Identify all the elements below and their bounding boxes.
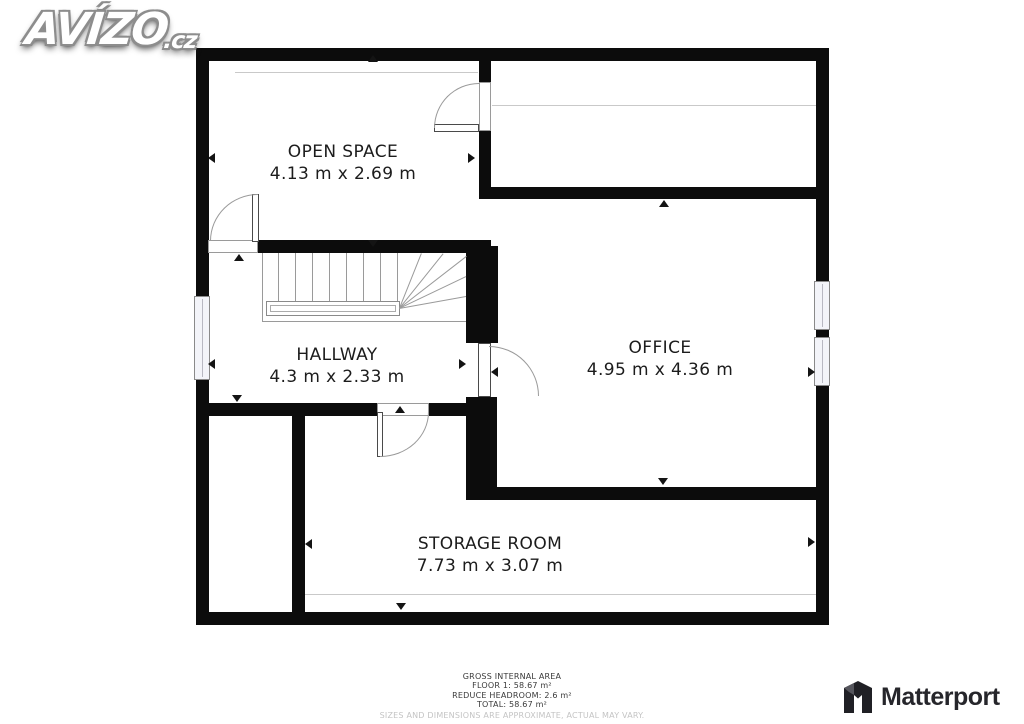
wall-hallway-bottom-left xyxy=(196,403,377,416)
arrow-hallway-up xyxy=(234,254,244,261)
arrow-office-down xyxy=(658,478,668,485)
avizo-suffix-text: .cz xyxy=(162,28,197,54)
matterport-wordmark: Matterport xyxy=(881,683,1000,712)
stair-handrail-inner xyxy=(270,305,396,312)
window-office-right-upper xyxy=(814,281,830,330)
stair-tread xyxy=(329,253,330,303)
room-name: HALLWAY xyxy=(197,344,477,366)
arrow-storage-down xyxy=(396,603,406,610)
room-label-open-space: OPEN SPACE 4.13 m x 2.69 m xyxy=(203,141,483,186)
stair-tread xyxy=(312,253,313,303)
matterport-icon xyxy=(843,681,873,714)
room-dims: 4.13 m x 2.69 m xyxy=(203,163,483,185)
arrow-storage-left xyxy=(305,539,312,549)
headroom-line-attic xyxy=(492,105,816,106)
wall-office-top xyxy=(479,187,829,199)
window-office-right-lower xyxy=(814,337,830,386)
arrow-hallway-down xyxy=(232,395,242,402)
wall-storage-left xyxy=(292,416,305,625)
door-threshold-openspace-east xyxy=(479,82,491,131)
arrow-storage-right xyxy=(808,537,815,547)
room-label-hallway: HALLWAY 4.3 m x 2.33 m xyxy=(197,344,477,389)
door-threshold-openspace-south xyxy=(208,240,258,253)
stair-tread xyxy=(363,253,364,303)
avizo-brand-text: AVÍZO xyxy=(23,4,169,55)
room-name: OFFICE xyxy=(520,337,800,359)
wall-openspace-divider-upper xyxy=(479,48,491,82)
room-name: STORAGE ROOM xyxy=(350,533,630,555)
wall-top xyxy=(196,48,829,61)
avizo-watermark-logo: AVÍZO.cz xyxy=(23,4,202,55)
stair-tread xyxy=(295,253,296,303)
door-swing-openspace-east xyxy=(434,83,479,128)
arrow-office-right xyxy=(808,367,815,377)
stair-tread xyxy=(346,253,347,303)
arrow-office-left xyxy=(491,367,498,377)
arrow-office-up xyxy=(659,200,669,207)
room-dims: 4.95 m x 4.36 m xyxy=(520,359,800,381)
door-swing-openspace-south xyxy=(210,194,258,241)
wall-office-left-lower xyxy=(466,397,497,500)
stair-tread xyxy=(397,253,398,303)
wall-openspace-bottom-left xyxy=(196,240,208,253)
arrow-storage-up xyxy=(395,406,405,413)
wall-bottom xyxy=(196,612,829,625)
wall-chimney-block xyxy=(466,246,498,343)
matterport-logo: Matterport xyxy=(843,681,1000,714)
area-summary-title: GROSS INTERNAL AREA xyxy=(0,672,1024,681)
arrow-openspace-up xyxy=(368,55,378,62)
floorplan-image: OPEN SPACE 4.13 m x 2.69 m HALLWAY 4.3 m… xyxy=(0,0,1024,724)
headroom-line-storage xyxy=(305,594,816,595)
wall-hallway-bottom-right xyxy=(429,403,467,416)
room-label-office: OFFICE 4.95 m x 4.36 m xyxy=(520,337,800,382)
arrow-openspace-down xyxy=(368,240,378,247)
stair-tread xyxy=(278,253,279,303)
door-swing-storage xyxy=(380,412,429,457)
room-dims: 7.73 m x 3.07 m xyxy=(350,555,630,577)
room-name: OPEN SPACE xyxy=(203,141,483,163)
room-label-storage-room: STORAGE ROOM 7.73 m x 3.07 m xyxy=(350,533,630,578)
stair-tread xyxy=(380,253,381,303)
headroom-line-openspace xyxy=(235,72,478,73)
room-dims: 4.3 m x 2.33 m xyxy=(197,366,477,388)
wall-office-bottom xyxy=(466,487,829,500)
